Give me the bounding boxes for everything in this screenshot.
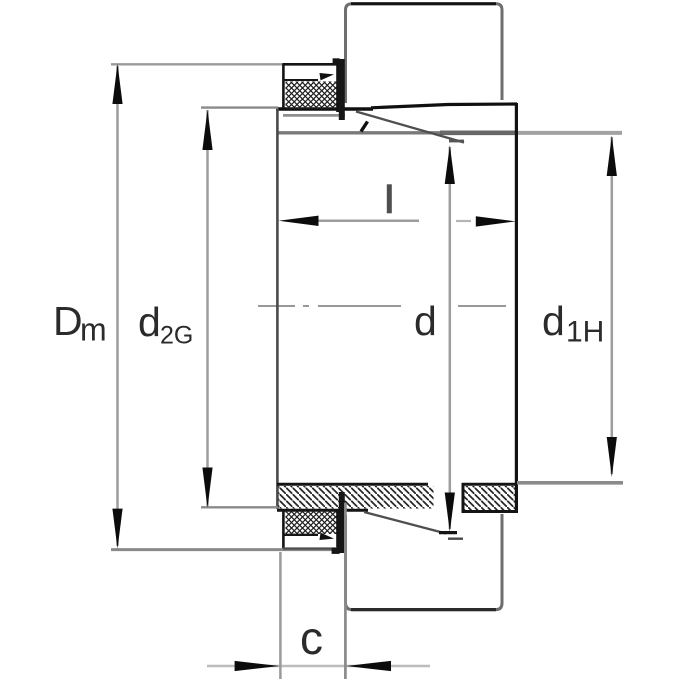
svg-text:D: D <box>53 298 83 344</box>
svg-text:d: d <box>542 298 565 344</box>
svg-text:2G: 2G <box>160 322 193 350</box>
svg-text:m: m <box>80 312 107 348</box>
svg-text:d: d <box>414 298 437 344</box>
svg-text:d: d <box>138 299 161 345</box>
svg-text:c: c <box>300 612 323 664</box>
svg-text:1H: 1H <box>566 316 604 349</box>
